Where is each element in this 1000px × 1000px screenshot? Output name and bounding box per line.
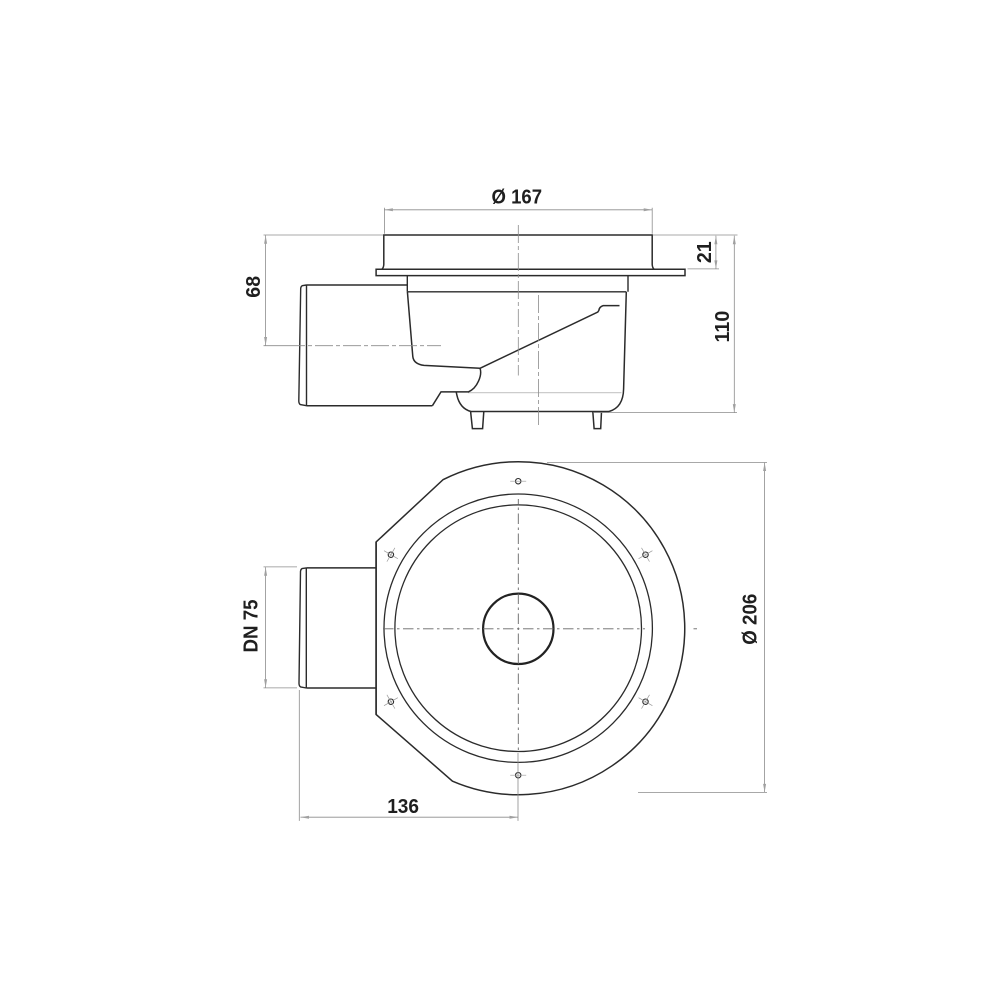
svg-text:68: 68: [242, 276, 265, 298]
svg-text:21: 21: [693, 241, 716, 263]
svg-text:136: 136: [387, 795, 419, 818]
svg-text:Ø 206: Ø 206: [738, 594, 761, 645]
svg-text:110: 110: [711, 311, 734, 343]
svg-text:Ø 167: Ø 167: [492, 185, 543, 208]
svg-text:DN 75: DN 75: [239, 600, 262, 653]
